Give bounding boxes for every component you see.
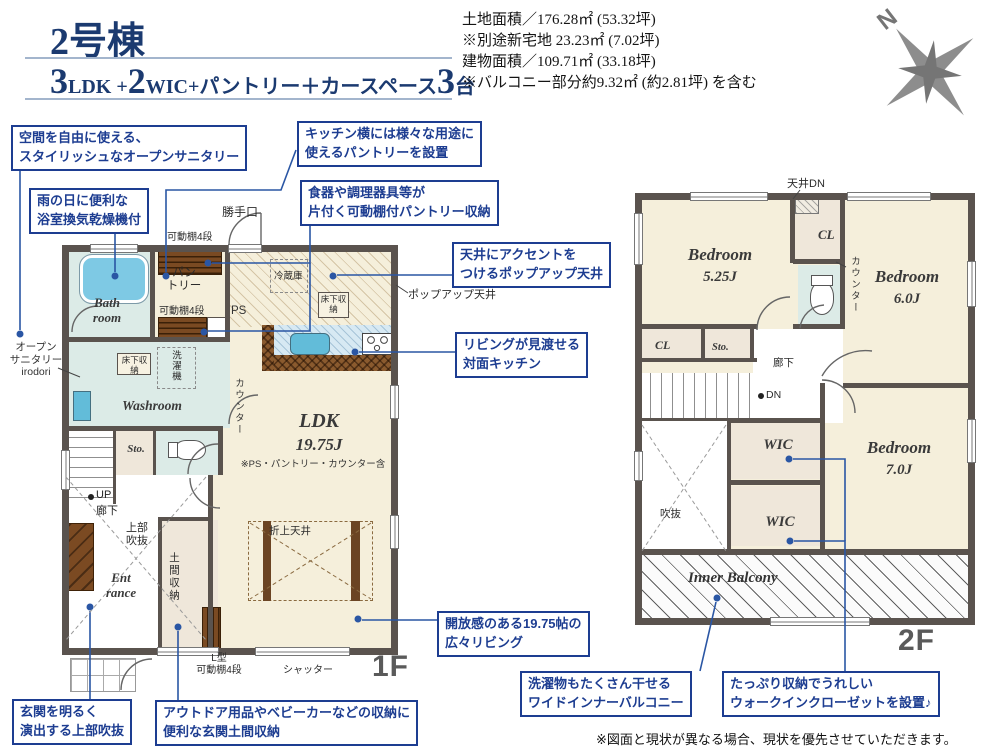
washer-label: 洗濯機 <box>168 350 182 382</box>
bedroom1-label: Bedroom5.25J <box>662 244 778 288</box>
wic2-label: WIC <box>750 514 810 531</box>
shutter-window <box>255 647 350 656</box>
floor-label-1f: 1F <box>372 650 409 684</box>
window <box>390 515 399 549</box>
entrance-label: Entrance <box>90 570 152 600</box>
counter-label-1f: カウンター <box>231 378 245 436</box>
wall <box>225 245 230 342</box>
l-shelf-label: L型可動棚4段 <box>186 653 252 677</box>
wall <box>218 426 223 475</box>
bedroom3-label: Bedroom7.0J <box>843 437 955 481</box>
washroom-label: Washroom <box>100 398 204 414</box>
wall <box>635 324 757 329</box>
entrance-porch <box>70 658 136 692</box>
building-area: 建物面積／109.71㎡ (33.18坪) <box>462 52 757 73</box>
callout-inner-balcony: 洗濯物もたくさん干せるワイドインナーバルコニー <box>520 671 692 717</box>
underfloor-washroom-label: 床下収納 <box>118 355 151 375</box>
toilet-fixture-1f <box>174 440 206 460</box>
hallway-2f <box>753 329 843 423</box>
ceiling-dn-label: 天井DN <box>787 175 825 191</box>
layout-seg: 3 <box>437 61 455 101</box>
callout-open-sanitary: 空間を自由に使える、スタイリッシュなオープンサニタリー <box>11 125 247 171</box>
wall <box>750 324 754 362</box>
wall <box>158 517 213 521</box>
window <box>847 192 931 201</box>
back-door-label: 勝手口 <box>222 203 258 220</box>
floor-label-2f: 2F <box>898 624 935 658</box>
wall <box>790 193 795 263</box>
shelf4-mid-label: 可動棚4段 <box>159 302 205 317</box>
underfloor-kitchen-label: 床下収納 <box>319 294 348 314</box>
wall <box>843 383 975 388</box>
callout-doma-storage: アウトドア用品やベビーカーなどの収納に便利な玄関土間収納 <box>155 700 418 746</box>
divider-bottom <box>25 98 452 100</box>
balcony-area-note: ※バルコニー部分約9.32㎡ (約2.81坪) を含む <box>462 73 757 94</box>
layout-seg: 2 <box>128 61 146 101</box>
window <box>967 261 976 307</box>
layout-seg: LDK + <box>68 76 128 98</box>
fridge-label: 冷蔵庫 <box>274 268 303 282</box>
ps-label: PS <box>231 305 246 317</box>
land-area: 土地面積／176.28㎡ (53.32坪) <box>462 10 757 31</box>
storage-2f-label: Sto. <box>712 342 729 353</box>
area-info: 土地面積／176.28㎡ (53.32坪) ※別途新宅地 23.23㎡ (7.0… <box>462 10 757 94</box>
inner-balcony-label: Inner Balcony <box>688 570 778 587</box>
hallway-2f-label: 廊下 <box>773 355 794 370</box>
stairs-2f <box>640 373 760 421</box>
void-2f <box>640 421 730 553</box>
callout-bath-dryer: 雨の日に便利な浴室換気乾燥機付 <box>29 188 149 234</box>
wall <box>635 358 757 362</box>
toilet-tank-2f <box>811 275 833 286</box>
room-inner-balcony <box>635 555 975 619</box>
window <box>90 244 138 253</box>
storage-1f-label: Sto. <box>116 443 156 455</box>
pantry-label: パントリー <box>160 267 208 293</box>
balcony-opening <box>770 617 870 626</box>
callout-pantry: キッチン横には様々な用途に使えるパントリーを設置 <box>297 121 482 167</box>
closet-top-label: CL <box>818 227 835 243</box>
callout-wic: たっぷり収納でうれしいウォークインクローゼットを設置♪ <box>722 671 940 717</box>
upper-void-label: 上部吹抜 <box>118 522 156 548</box>
toilet-fixture-2f <box>810 281 834 315</box>
wall <box>635 549 975 555</box>
layout-line: 3LDK +2WIC+パントリー＋カースペース3台 <box>50 60 475 102</box>
coffered-label: 折上天井 <box>269 523 311 538</box>
back-door-opening <box>228 244 262 253</box>
up-label: UP <box>96 489 111 501</box>
open-sanitary-label: オープンサニタリーirodori <box>2 341 70 379</box>
wall <box>793 324 845 329</box>
shelf4-top-label: 可動棚4段 <box>167 228 213 243</box>
toilet-tank-1f <box>168 442 178 458</box>
bedroom2-label: Bedroom6.0J <box>852 266 962 310</box>
ldk-label: LDK19.75J <box>259 410 379 456</box>
callout-pantry-shelves: 食器や調理器具等が片付く可動棚付パントリー収納 <box>300 180 499 226</box>
counter-base <box>262 355 396 371</box>
wall <box>158 517 162 648</box>
window <box>61 450 70 490</box>
ldk-note: ※PS・パントリー・カウンター含 <box>228 456 398 470</box>
disclaimer: ※図面と現状が異なる場合、現状を優先させていただきます。 <box>596 729 957 748</box>
callout-entrance-void: 玄関を明るく演出する上部吹抜 <box>12 699 132 745</box>
extra-land: ※別途新宅地 23.23㎡ (7.02坪) <box>462 31 757 52</box>
coffered-beam <box>351 521 360 601</box>
window <box>634 451 643 481</box>
callout-living: 開放感のある19.75帖の広々リビング <box>437 611 590 657</box>
wall <box>727 418 823 423</box>
wall <box>968 193 975 625</box>
window <box>967 419 976 463</box>
wic1-label: WIC <box>748 437 808 454</box>
callout-kitchen: リビングが見渡せる対面キッチン <box>455 332 588 378</box>
window <box>690 192 768 201</box>
wall <box>793 259 843 264</box>
open-sanitary-basin <box>73 391 91 421</box>
layout-seg: WIC+パントリー＋カースペース <box>146 76 437 98</box>
wall <box>820 383 825 555</box>
doma-label: 土間収納 <box>167 552 182 602</box>
layout-seg: 3 <box>50 61 68 101</box>
wall <box>62 337 230 342</box>
counter-base-return <box>262 325 274 371</box>
wall <box>727 418 731 555</box>
window <box>390 385 399 419</box>
closet-bottom-label: CL <box>655 338 670 353</box>
callout-popup-ceiling: 天井にアクセントをつけるポップアップ天井 <box>452 242 611 288</box>
void-2f-label: 吹抜 <box>660 506 681 521</box>
floorplan-sheet: 2号棟 3LDK +2WIC+パントリー＋カースペース3台 土地面積／176.2… <box>0 0 1000 750</box>
popup-ceiling-label: ポップアップ天井 <box>408 286 496 302</box>
wall <box>150 245 155 342</box>
wall <box>62 426 222 431</box>
shutter-label: シャッター <box>283 661 333 676</box>
dn-label: DN <box>766 389 781 401</box>
compass-icon: N <box>862 0 992 135</box>
bathroom-label: Bathroom <box>78 295 136 325</box>
divider-top <box>25 57 452 59</box>
wall <box>391 245 398 655</box>
hallway-1f-label: 廊下 <box>96 502 118 518</box>
kitchen-sink <box>290 333 330 355</box>
wall <box>701 324 705 362</box>
window <box>634 213 643 265</box>
wall <box>208 475 213 648</box>
kitchen-popup-ceiling-area <box>228 245 398 327</box>
wall <box>730 480 820 485</box>
